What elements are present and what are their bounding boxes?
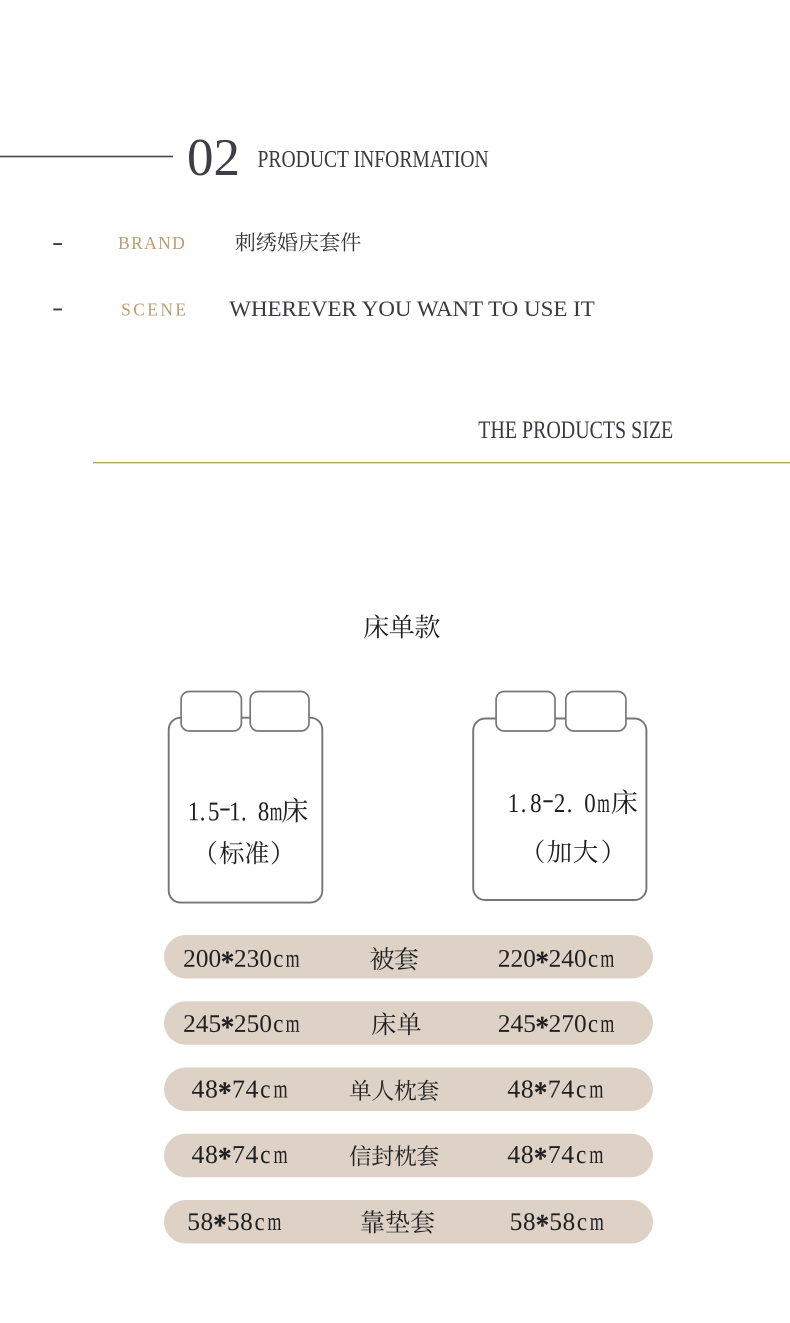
svg-text:PRODUCT INFORMATION: PRODUCT INFORMATION bbox=[258, 146, 489, 173]
svg-text:WHEREVER YOU WANT TO USE IT: WHEREVER YOU WANT TO USE IT bbox=[229, 296, 595, 321]
svg-text:THE PRODUCTS SIZE: THE PRODUCTS SIZE bbox=[478, 417, 673, 444]
svg-text:02: 02 bbox=[187, 129, 240, 187]
svg-text:BRAND: BRAND bbox=[118, 233, 185, 253]
